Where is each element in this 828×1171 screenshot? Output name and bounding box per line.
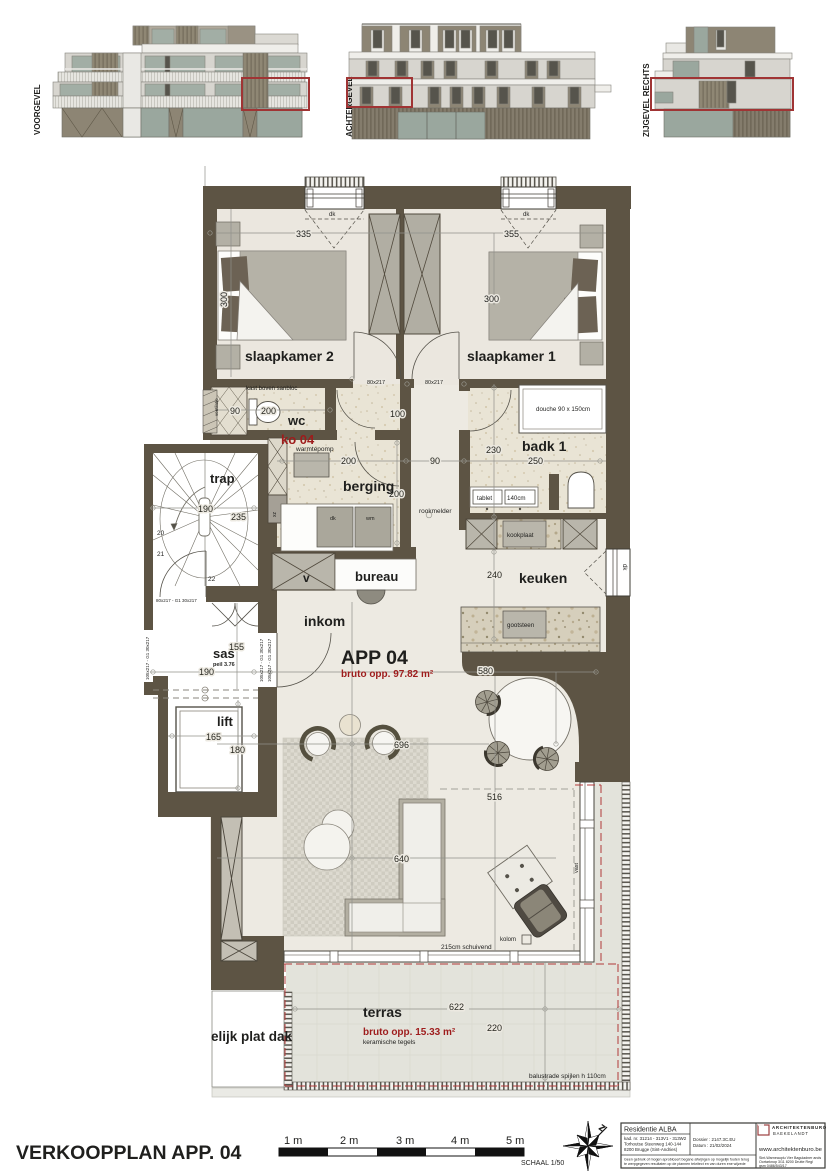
- svg-text:300: 300: [219, 292, 229, 307]
- svg-text:516: 516: [487, 792, 502, 802]
- svg-text:SCHAAL 1/50: SCHAAL 1/50: [521, 1160, 564, 1167]
- svg-text:250: 250: [528, 456, 543, 466]
- svg-text:200: 200: [261, 406, 276, 416]
- svg-text:Datum : 21/02/2024: Datum : 21/02/2024: [693, 1143, 732, 1148]
- svg-text:VERKOOPPLAN APP. 04: VERKOOPPLAN APP. 04: [16, 1142, 242, 1164]
- svg-text:te werpgegeven resultaten op: te werpgegeven resultaten op de plannen …: [624, 1162, 746, 1166]
- svg-text:kad. nr. 31214 - 313V1 - 313W2: kad. nr. 31214 - 313V1 - 313W2: [624, 1136, 687, 1141]
- svg-text:terras: terras: [363, 1004, 402, 1020]
- svg-text:elijk plat dak: elijk plat dak: [211, 1029, 293, 1044]
- svg-text:2 m: 2 m: [340, 1135, 358, 1147]
- svg-text:www.architektenburo.be: www.architektenburo.be: [758, 1147, 823, 1153]
- svg-text:keuken: keuken: [519, 570, 567, 586]
- svg-text:105x217 - G1 30x217: 105x217 - G1 30x217: [267, 638, 272, 682]
- svg-text:xz: xz: [272, 512, 278, 518]
- svg-text:warmtepomp: warmtepomp: [295, 446, 334, 453]
- svg-text:lift: lift: [217, 714, 234, 729]
- svg-text:80x217 - G1 30x217: 80x217 - G1 30x217: [156, 598, 197, 603]
- svg-text:vast: vast: [574, 862, 580, 873]
- svg-text:580: 580: [478, 666, 493, 676]
- svg-text:235: 235: [231, 512, 246, 522]
- svg-text:BAEKELANDT: BAEKELANDT: [773, 1131, 809, 1136]
- svg-text:Dossier : 2147.3C.EU: Dossier : 2147.3C.EU: [693, 1137, 735, 1142]
- svg-text:80x217: 80x217: [367, 380, 385, 386]
- svg-text:300: 300: [484, 294, 499, 304]
- svg-text:tablet: tablet: [477, 495, 492, 502]
- svg-text:ARCHITEKTENBURO: ARCHITEKTENBURO: [772, 1125, 827, 1130]
- svg-text:kast boven sanbloc: kast boven sanbloc: [246, 386, 297, 392]
- svg-text:140cm: 140cm: [507, 495, 526, 502]
- svg-text:gootsteen: gootsteen: [507, 622, 535, 629]
- svg-text:80x217: 80x217: [425, 380, 443, 386]
- svg-text:kolom: kolom: [500, 937, 516, 943]
- svg-text:22: 22: [208, 576, 216, 583]
- svg-text:190: 190: [199, 667, 214, 677]
- svg-text:5 m: 5 m: [506, 1135, 524, 1147]
- svg-text:240: 240: [487, 570, 502, 580]
- svg-text:ko 04: ko 04: [281, 432, 315, 447]
- svg-text:4 m: 4 m: [451, 1135, 469, 1147]
- svg-text:640: 640: [394, 854, 409, 864]
- svg-text:wc: wc: [287, 413, 305, 428]
- svg-text:8200 Brugge (Sint-Andries): 8200 Brugge (Sint-Andries): [624, 1147, 678, 1152]
- svg-text:kookplaat: kookplaat: [507, 532, 534, 539]
- svg-text:90: 90: [230, 406, 240, 416]
- svg-text:100: 100: [390, 409, 405, 419]
- svg-text:bruto opp. 15.33 m²: bruto opp. 15.33 m²: [363, 1027, 456, 1038]
- svg-text:dk: dk: [621, 564, 627, 571]
- svg-text:165: 165: [206, 732, 221, 742]
- svg-text:sas: sas: [213, 646, 235, 661]
- svg-text:dk: dk: [523, 212, 530, 218]
- svg-text:ventilatie: ventilatie: [214, 398, 219, 416]
- svg-text:696: 696: [394, 740, 409, 750]
- svg-text:230: 230: [486, 445, 501, 455]
- svg-text:bruto opp. 97.82 m²: bruto opp. 97.82 m²: [341, 669, 434, 680]
- svg-text:220: 220: [487, 1023, 502, 1033]
- svg-text:rookmelder: rookmelder: [419, 508, 452, 515]
- svg-text:gsm 0486/543/17: gsm 0486/543/17: [759, 1164, 787, 1168]
- svg-text:wm: wm: [365, 516, 375, 522]
- svg-text:ZIJGEVEL RECHTS: ZIJGEVEL RECHTS: [642, 63, 651, 137]
- svg-text:bureau: bureau: [355, 569, 398, 584]
- svg-text:190: 190: [198, 504, 213, 514]
- svg-text:inkom: inkom: [304, 613, 345, 629]
- svg-text:dk: dk: [329, 212, 336, 218]
- svg-text:90: 90: [430, 456, 440, 466]
- svg-text:180: 180: [230, 745, 245, 755]
- svg-text:355: 355: [504, 229, 519, 239]
- svg-text:slaapkamer 2: slaapkamer 2: [245, 348, 334, 364]
- svg-text:Residentie ALBA: Residentie ALBA: [624, 1127, 677, 1134]
- svg-text:v: v: [303, 571, 310, 585]
- svg-text:20: 20: [157, 530, 165, 537]
- svg-text:slaapkamer 1: slaapkamer 1: [467, 348, 556, 364]
- svg-text:trap: trap: [210, 471, 235, 486]
- svg-text:peil 3.76: peil 3.76: [213, 662, 235, 668]
- svg-text:Geen gebruik of mogen aproblce: Geen gebruik of mogen aproblceert begane…: [624, 1158, 749, 1162]
- svg-text:keramische tegels: keramische tegels: [363, 1039, 416, 1046]
- svg-text:200: 200: [341, 456, 356, 466]
- svg-text:335: 335: [296, 229, 311, 239]
- svg-text:215cm schuivend: 215cm schuivend: [441, 944, 492, 951]
- svg-text:105x217 - G1 30x217: 105x217 - G1 30x217: [259, 638, 264, 682]
- svg-text:3 m: 3 m: [396, 1135, 414, 1147]
- svg-text:1 m: 1 m: [284, 1135, 302, 1147]
- svg-text:berging: berging: [343, 478, 394, 494]
- svg-text:douche 90 x 150cm: douche 90 x 150cm: [536, 406, 590, 413]
- svg-text:622: 622: [449, 1002, 464, 1012]
- svg-text:VOORGEVEL: VOORGEVEL: [33, 84, 42, 135]
- svg-text:balustrade spijlen h 110cm: balustrade spijlen h 110cm: [529, 1073, 606, 1080]
- svg-text:dk: dk: [330, 516, 336, 522]
- svg-text:105x217 - G1 30x217: 105x217 - G1 30x217: [145, 636, 150, 680]
- svg-text:APP 04: APP 04: [341, 647, 408, 669]
- svg-text:21: 21: [157, 551, 165, 558]
- svg-text:Torhoutse Steenweg 140-144: Torhoutse Steenweg 140-144: [624, 1142, 682, 1147]
- svg-text:badk 1: badk 1: [522, 438, 567, 454]
